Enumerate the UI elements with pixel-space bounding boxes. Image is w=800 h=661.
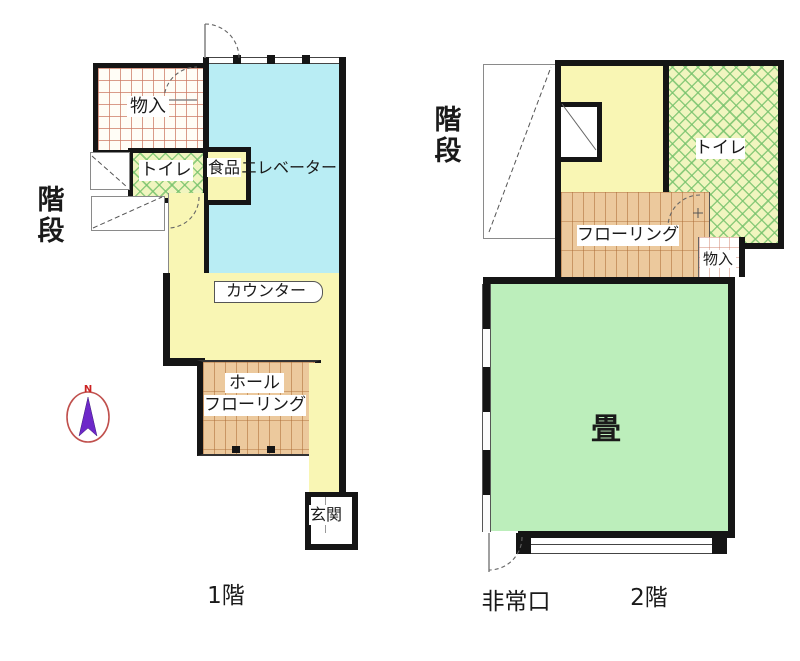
- door-arc-corridor-1f: [168, 197, 199, 228]
- food-elevator-label-part2: エレベーター: [241, 158, 343, 177]
- annotation-overlay: N: [0, 0, 800, 661]
- storage-label-2f: 物入: [700, 250, 736, 268]
- door-hinge-mark-2f: [693, 208, 703, 218]
- compass-north-label: N: [84, 384, 92, 395]
- door-arc-flooring-2f: [668, 195, 700, 227]
- compass-north-arrow-icon: [79, 397, 97, 436]
- hall-label-line2: フローリング: [204, 395, 306, 416]
- closet-2f-diagonal: [562, 104, 596, 150]
- floor-plan-canvas: N 階段 物入 トイレ 食品 エレベーター カウンター ホール フローリング 玄…: [0, 0, 800, 661]
- food-elevator-label-part1: 食品: [207, 158, 241, 177]
- stairs-1f-diagonal-lower: [93, 197, 162, 228]
- tatami-label-2f: 畳: [588, 412, 624, 448]
- stairs-label-2f: 階段: [427, 96, 463, 176]
- stairs-1f-diagonal-upper: [92, 156, 127, 187]
- door-arc-exit-2f: [489, 537, 522, 570]
- floor2-title: 2階: [618, 583, 680, 613]
- stairs-2f-diagonal: [489, 67, 551, 232]
- storage-label-1f: 物入: [127, 96, 169, 117]
- entrance-label-1f: 玄関: [309, 505, 343, 525]
- flooring-label-2f: フローリング: [577, 225, 679, 246]
- door-arc-1f-top: [205, 24, 239, 58]
- stairs-label-1f: 階段: [30, 176, 66, 256]
- toilet-label-1f: トイレ: [139, 160, 193, 181]
- hall-label-line1: ホール: [225, 373, 284, 393]
- counter-label-1f: カウンター: [216, 282, 316, 300]
- floor1-title: 1階: [196, 581, 256, 611]
- emergency-exit-label: 非常口: [472, 587, 560, 617]
- toilet-label-2f: トイレ: [696, 138, 745, 159]
